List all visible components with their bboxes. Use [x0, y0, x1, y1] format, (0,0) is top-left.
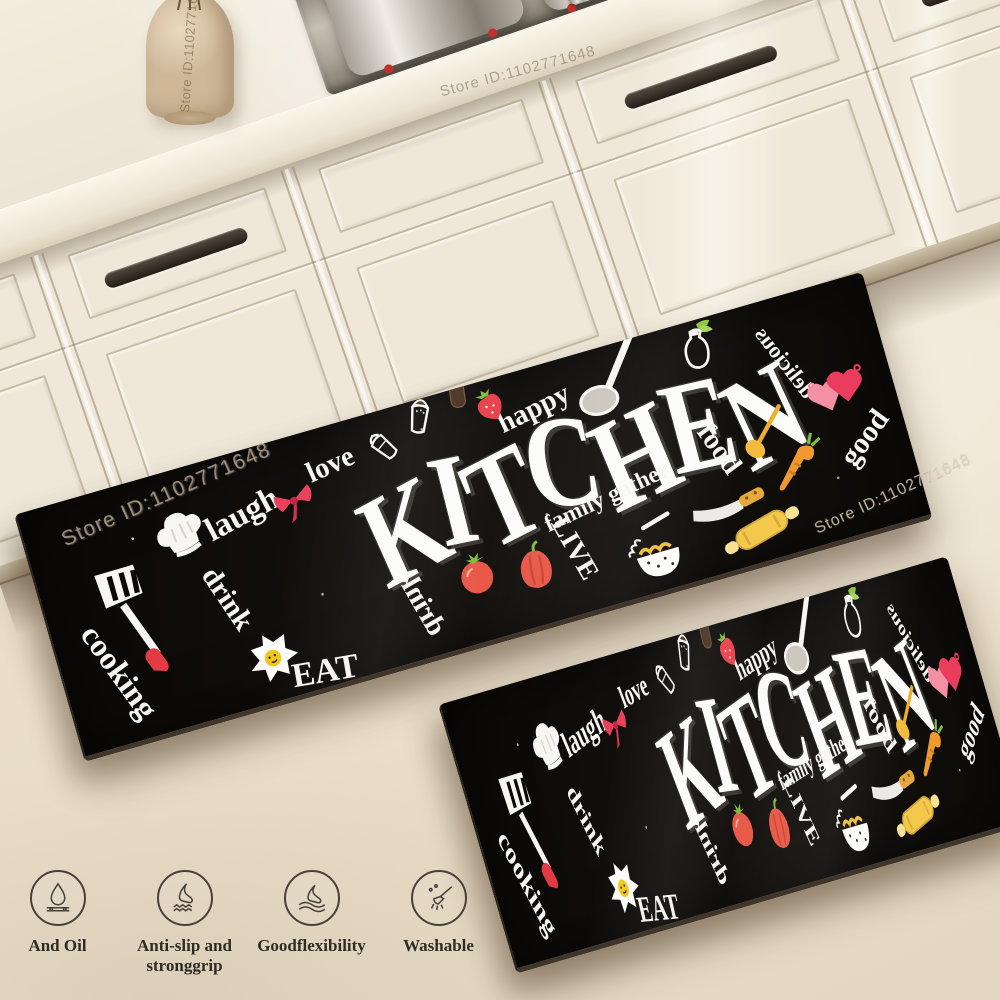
mat-word-happy: happy — [730, 631, 781, 687]
mat-word-cooking: cooking — [74, 620, 162, 726]
mat-word-family-gather: family gather — [775, 727, 854, 795]
mat-word-laugh: laugh — [557, 700, 610, 763]
carrot-icon — [903, 709, 957, 784]
feature-label: Washable — [403, 936, 474, 956]
tomato-icon — [443, 541, 509, 607]
mat-word-drink: drink — [196, 562, 258, 636]
pepper-mill-icon — [686, 605, 723, 654]
mat-word-delicious: delicious — [751, 323, 820, 403]
pepper-shaker-icon — [666, 619, 701, 682]
mat-word-good: good — [835, 404, 895, 471]
fried-egg-icon — [597, 849, 652, 930]
fried-egg-icon — [234, 619, 314, 699]
mat-word-family-gather: family gather — [541, 458, 672, 536]
flower-vase — [146, 0, 234, 118]
carrot-icon — [758, 422, 834, 499]
mat-word-live: LIVE — [546, 512, 604, 585]
mat-word-drink: drink — [689, 810, 733, 890]
drawer-panel — [0, 273, 36, 386]
mat-word-laugh: laugh — [199, 480, 284, 546]
mat-word-love: love — [615, 669, 652, 714]
feature-3: Goodflexibility — [248, 870, 375, 977]
salt-shaker-icon — [351, 414, 414, 477]
wooden-spoon-icon — [882, 680, 931, 748]
strawberry-icon — [710, 625, 745, 679]
feature-label: Goodflexibility — [257, 936, 366, 956]
noodle-pot-icon — [822, 780, 886, 869]
mat-word-happy: happy — [493, 379, 574, 439]
mat-word-food: food — [860, 692, 899, 758]
spatula-icon — [81, 561, 190, 672]
mat-word-food: food — [692, 418, 747, 479]
bell-pepper-icon — [503, 534, 568, 599]
feature-1: And Oil — [0, 870, 121, 977]
knife-icon — [673, 448, 781, 557]
bow-icon — [263, 471, 328, 536]
anti-slip-icon — [157, 870, 213, 926]
bow-icon — [594, 696, 639, 761]
mat-title-kitchen: KITCHEN — [646, 619, 939, 835]
flexibility-icon — [284, 870, 340, 926]
mat-word-love: love — [302, 441, 359, 488]
features-bar: And OilAnti-slip and stronggripGoodflexi… — [0, 870, 502, 977]
oil-drop-icon — [30, 870, 86, 926]
feature-2: Anti-slip and stronggrip — [121, 870, 248, 977]
mat-word-delicious: delicious — [885, 598, 936, 686]
mat-word-eat: EAT — [289, 647, 361, 692]
chef-hat-icon — [521, 705, 581, 795]
knife-icon — [854, 728, 929, 837]
feature-label: Anti-slip and stronggrip — [137, 936, 232, 977]
mat-word-drink: drink — [392, 566, 451, 640]
mat-word-live: LIVE — [780, 772, 823, 850]
wooden-spoon-icon — [730, 399, 798, 468]
feature-4: Washable — [375, 870, 502, 977]
tomato-icon — [718, 793, 765, 858]
chef-hat-icon — [142, 493, 230, 582]
rolling-pin-icon — [701, 468, 820, 588]
strawberry-icon — [464, 381, 516, 434]
mat-word-drink: drink — [564, 780, 609, 859]
rolling-pin-icon — [877, 752, 957, 874]
bell-pepper-icon — [755, 794, 803, 856]
ladle-icon — [764, 588, 833, 684]
washable-icon — [411, 870, 467, 926]
mat-word-good: good — [955, 697, 989, 767]
feature-label: And Oil — [28, 936, 86, 956]
salt-shaker-icon — [645, 644, 684, 712]
mitts-icon — [796, 348, 880, 433]
oil-bottle-icon — [828, 584, 873, 644]
product-photo: KITCHENlaughlovehappydrinkcookingEATdrin… — [0, 0, 1000, 1000]
mat-word-cooking: cooking — [494, 826, 560, 942]
noodle-pot-icon — [613, 506, 702, 596]
mat-word-eat: EAT — [634, 887, 683, 927]
oil-bottle-icon — [665, 315, 727, 377]
mitts-icon — [918, 636, 978, 719]
dried-plant-icon — [170, 0, 210, 10]
